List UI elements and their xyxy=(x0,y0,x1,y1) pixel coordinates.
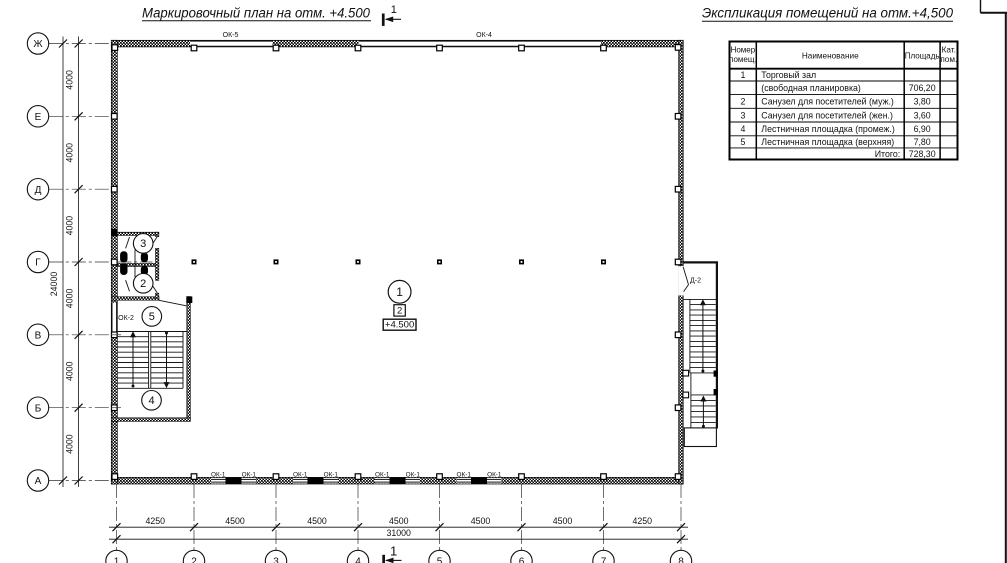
svg-text:2: 2 xyxy=(191,557,197,563)
svg-text:7: 7 xyxy=(601,557,607,563)
svg-text:3: 3 xyxy=(273,557,279,563)
svg-text:Торговый зал: Торговый зал xyxy=(761,70,816,80)
svg-text:Санузел для посетителей (муж.): Санузел для посетителей (муж.) xyxy=(761,97,894,107)
svg-text:Е: Е xyxy=(35,112,42,123)
svg-text:2: 2 xyxy=(740,97,745,107)
svg-text:3: 3 xyxy=(740,110,745,120)
svg-text:ОК-1: ОК-1 xyxy=(487,472,502,479)
svg-text:1: 1 xyxy=(114,557,120,563)
svg-text:ОК-1: ОК-1 xyxy=(406,472,421,479)
svg-text:+4.500: +4.500 xyxy=(385,320,414,331)
svg-text:А: А xyxy=(35,476,42,487)
svg-text:4000: 4000 xyxy=(65,361,75,381)
svg-text:4500: 4500 xyxy=(307,516,327,526)
svg-text:4500: 4500 xyxy=(389,516,409,526)
svg-text:Экспликация помещений на отм.+: Экспликация помещений на отм.+4,500 xyxy=(702,6,953,22)
svg-text:4000: 4000 xyxy=(65,70,75,90)
svg-text:6: 6 xyxy=(519,557,525,563)
svg-text:ОК-1: ОК-1 xyxy=(324,472,339,479)
svg-text:4000: 4000 xyxy=(65,289,75,309)
svg-text:4000: 4000 xyxy=(65,143,75,163)
svg-text:пом.: пом. xyxy=(940,55,957,64)
svg-text:3,80: 3,80 xyxy=(914,97,931,107)
svg-text:4500: 4500 xyxy=(471,516,491,526)
svg-text:Д: Д xyxy=(35,185,42,196)
svg-text:Площадь: Площадь xyxy=(905,52,940,61)
svg-text:Ж: Ж xyxy=(33,39,43,50)
svg-text:1: 1 xyxy=(391,4,397,16)
svg-text:ОК-5: ОК-5 xyxy=(223,32,239,39)
svg-text:728,30: 728,30 xyxy=(909,149,936,159)
svg-text:4: 4 xyxy=(740,124,745,134)
svg-text:Наименование: Наименование xyxy=(802,52,859,61)
svg-text:Маркировочный план на отм. +4.: Маркировочный план на отм. +4.500 xyxy=(142,6,370,22)
svg-text:В: В xyxy=(35,330,42,341)
svg-text:Лестничная площадка (верхняя): Лестничная площадка (верхняя) xyxy=(761,137,894,147)
svg-text:ОК-1: ОК-1 xyxy=(293,472,308,479)
svg-text:1: 1 xyxy=(396,285,403,299)
svg-text:7,80: 7,80 xyxy=(914,137,931,147)
svg-text:3,60: 3,60 xyxy=(914,110,931,120)
svg-text:1: 1 xyxy=(740,70,745,80)
svg-text:5: 5 xyxy=(740,137,745,147)
svg-text:4250: 4250 xyxy=(145,516,165,526)
svg-text:ОК-1: ОК-1 xyxy=(375,472,390,479)
svg-text:2: 2 xyxy=(140,278,146,290)
svg-text:Кат.: Кат. xyxy=(942,46,956,55)
svg-text:31000: 31000 xyxy=(386,528,411,538)
svg-text:2: 2 xyxy=(397,306,402,317)
svg-text:помещ.: помещ. xyxy=(729,55,757,64)
svg-text:5: 5 xyxy=(437,557,443,563)
svg-text:Номер: Номер xyxy=(731,46,756,55)
svg-text:1: 1 xyxy=(390,544,397,559)
svg-text:4: 4 xyxy=(355,557,361,563)
svg-text:6,90: 6,90 xyxy=(914,124,931,134)
svg-text:Лестничная площадка (промеж.): Лестничная площадка (промеж.) xyxy=(761,124,895,134)
svg-text:Б: Б xyxy=(35,403,42,414)
svg-text:4000: 4000 xyxy=(65,434,75,454)
svg-text:4000: 4000 xyxy=(65,216,75,236)
svg-text:4250: 4250 xyxy=(632,516,652,526)
svg-text:4500: 4500 xyxy=(225,516,245,526)
svg-text:706,20: 706,20 xyxy=(909,83,936,93)
svg-text:4500: 4500 xyxy=(553,516,573,526)
svg-text:8: 8 xyxy=(678,557,684,563)
svg-text:4: 4 xyxy=(148,395,154,407)
svg-text:ОК-4: ОК-4 xyxy=(476,32,492,39)
svg-text:Итого:: Итого: xyxy=(875,149,901,159)
svg-text:(свободная планировка): (свободная планировка) xyxy=(761,83,861,93)
svg-text:Г: Г xyxy=(35,258,41,269)
svg-text:Д-2: Д-2 xyxy=(690,278,701,285)
svg-text:ОК-2: ОК-2 xyxy=(118,315,134,322)
svg-text:ОК-1: ОК-1 xyxy=(242,472,257,479)
svg-text:Санузел для посетителей (жен.): Санузел для посетителей (жен.) xyxy=(761,110,893,120)
svg-text:24000: 24000 xyxy=(49,272,59,297)
svg-text:5: 5 xyxy=(149,311,155,323)
svg-text:3: 3 xyxy=(140,238,146,250)
svg-text:ОК-1: ОК-1 xyxy=(211,472,226,479)
svg-text:ОК-1: ОК-1 xyxy=(457,472,472,479)
